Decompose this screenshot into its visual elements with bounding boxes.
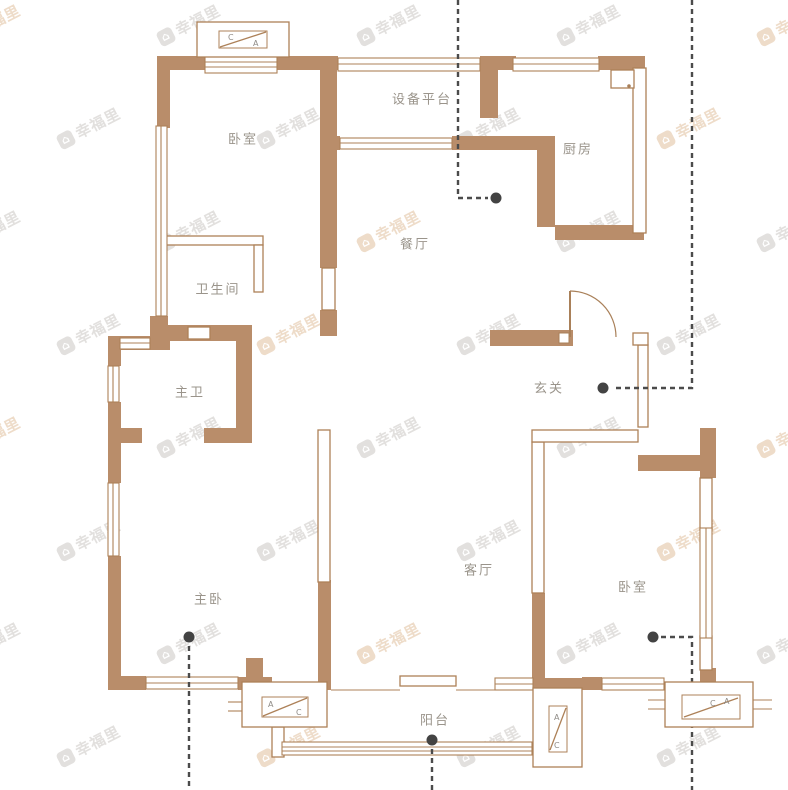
ac-unit-bottom-right: C A (665, 682, 753, 727)
window-bedroom1-top (205, 56, 277, 73)
ac-units: C A A C A C C A (197, 22, 753, 767)
ac-letter: A (268, 700, 274, 709)
windows (108, 56, 712, 755)
flue-mark (627, 84, 631, 88)
room-label-bedroom-1: 卧室 (228, 129, 258, 148)
ac-letter: A (253, 39, 259, 48)
window-masterbath-small (120, 338, 150, 349)
window-living-bottom (495, 678, 533, 690)
window-kitchen-top (513, 58, 599, 71)
window-bedroom2-right (700, 528, 712, 638)
room-label-equipment-platform: 设备平台 (392, 89, 452, 108)
window-bedroom2-bottom (602, 678, 664, 690)
window-masterbed-left (108, 483, 119, 556)
floor-plan-drawing: C A A C A C C A (0, 0, 788, 790)
room-label-balcony: 阳台 (420, 710, 450, 729)
window-masterbed-bottom (146, 677, 238, 689)
room-label-bedroom-2: 卧室 (618, 577, 648, 596)
room-label-dining: 餐厅 (400, 234, 430, 253)
window-masterbath-left (108, 366, 119, 402)
entry-door (559, 291, 616, 343)
room-label-master-bath: 主卫 (175, 382, 205, 401)
window-platform-bottom (340, 138, 452, 149)
room-label-foyer: 玄关 (534, 378, 564, 397)
window-balcony-bottom (282, 742, 532, 755)
ac-letter: C (710, 699, 716, 708)
room-label-master-bedroom: 主卧 (194, 589, 224, 608)
window-bedroom1-left (156, 126, 167, 316)
ac-unit-balcony-left: A C (242, 682, 327, 727)
room-label-living: 客厅 (464, 560, 494, 579)
ac-letter: C (554, 741, 560, 750)
room-label-bathroom: 卫生间 (195, 279, 240, 298)
ac-letter: C (296, 708, 302, 717)
floor-plan-page: ⌂幸福里⌂幸福里⌂幸福里⌂幸福里⌂幸福里⌂幸福里⌂幸福里⌂幸福里⌂幸福里⌂幸福里… (0, 0, 788, 790)
ac-letter: C (228, 33, 234, 42)
room-label-kitchen: 厨房 (563, 139, 593, 158)
dashed-lines (189, 0, 692, 790)
ac-letter: A (554, 713, 560, 722)
ac-letter: A (724, 697, 730, 706)
ac-unit-top: C A (197, 22, 289, 57)
ac-unit-balcony-right: A C (533, 688, 582, 767)
